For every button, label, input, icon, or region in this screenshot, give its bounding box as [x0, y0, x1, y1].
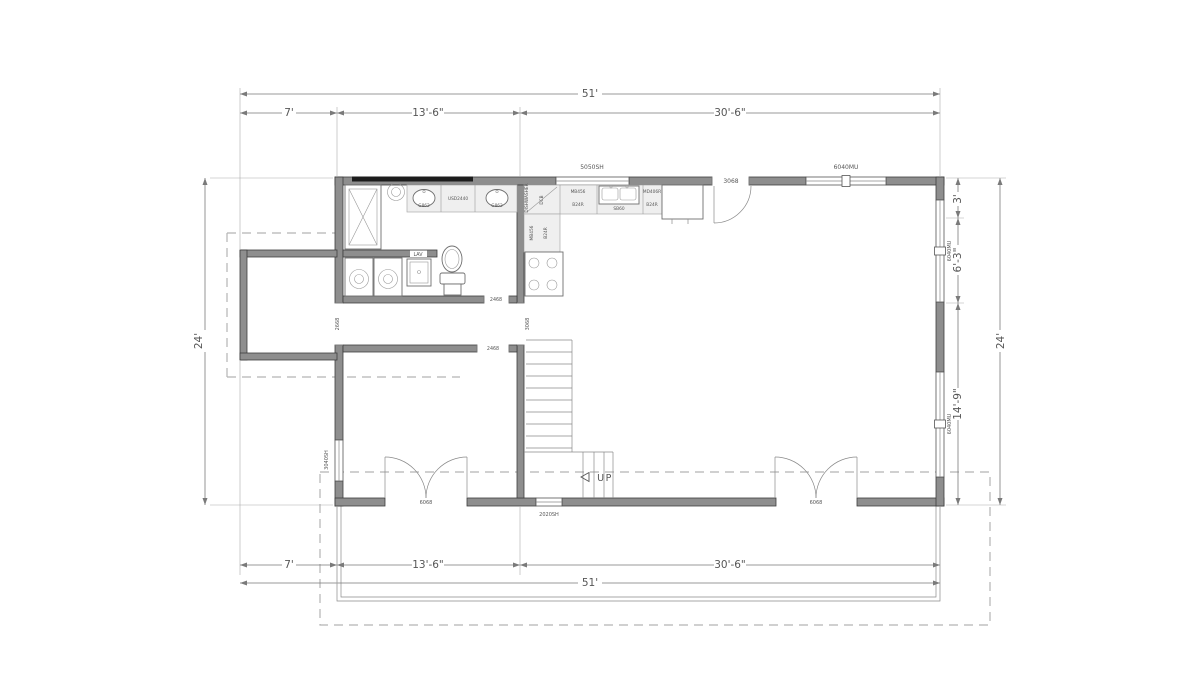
wall-bath-kitchen-divider	[517, 185, 524, 303]
toilet	[440, 246, 465, 295]
refrigerator	[662, 185, 703, 224]
kitchen-sink	[599, 186, 639, 204]
label-vanity-center: USD2440	[448, 196, 468, 202]
dim-left-overall: 24'	[193, 333, 205, 349]
up-arrow-icon	[581, 473, 589, 482]
label-opening-3068-hall: 3068	[525, 318, 531, 331]
wall-bottom-3	[562, 498, 776, 506]
window-6040mu-right-1	[935, 200, 946, 302]
label-leg-base-cabinet: B24R	[543, 227, 549, 238]
left-room-walls	[240, 250, 337, 360]
dim-top-seg-1: 7'	[284, 107, 294, 119]
label-window-6040mu-right-2: 6040MU	[947, 413, 953, 434]
label-door-2468-hall: 2468	[487, 346, 499, 352]
dim-right-seg-1: 3'	[952, 194, 964, 204]
dim-bottom-seg-2: 13'-6"	[412, 559, 444, 571]
dim-right-seg-2: 6'-3"	[952, 248, 964, 273]
label-door-2468-bath: 2468	[490, 297, 502, 303]
label-door-6068-right: 6068	[810, 500, 823, 506]
wall-left-1	[335, 177, 343, 303]
label-door-6068-left: 6068	[420, 500, 433, 506]
label-window-6040mu-right-1: 6040MU	[947, 240, 953, 261]
opening-labels: 5050SH 3068 6040MU 6040MU 6040MU 3040SH …	[324, 164, 953, 518]
dim-top-seg-3: 30'-6"	[714, 107, 746, 119]
wall-bath-south-b	[509, 296, 517, 303]
dim-top-seg-2: 13'-6"	[412, 107, 444, 119]
wall-hall-south-a	[343, 345, 477, 352]
wall-top-4	[886, 177, 944, 185]
label-window-5050sh: 5050SH	[580, 164, 604, 171]
wall-right-1	[936, 177, 944, 200]
label-cabinet-right: MD406R	[643, 189, 661, 195]
label-door-2668: 2668	[335, 318, 341, 331]
doors	[335, 177, 857, 498]
label-window-3040sh: 3040SH	[324, 450, 330, 470]
wall-bottom-2	[467, 498, 536, 506]
bathroom	[345, 177, 517, 297]
label-vanity-left-sink: G862	[418, 203, 430, 209]
stairs: UP	[524, 340, 613, 498]
window-6040mu-right-2	[935, 372, 946, 477]
range	[525, 252, 563, 296]
mirror	[352, 177, 473, 182]
wall-hall-south-b	[509, 345, 517, 352]
exhaust-fan-icon	[388, 184, 405, 201]
label-wall-cabinet: MB456	[571, 189, 586, 195]
window-3040sh-left	[335, 440, 343, 481]
wall-bottom-1	[335, 498, 385, 506]
wall-right-2	[936, 302, 944, 372]
window-5050sh	[556, 177, 629, 185]
floor-plan-page: UP	[0, 0, 1200, 700]
wall-bottom-4	[857, 498, 944, 506]
wall-top-3	[749, 177, 806, 185]
dim-bottom-seg-1: 7'	[284, 559, 294, 571]
shower	[345, 185, 381, 249]
label-corner-cabinet: DCB	[539, 195, 545, 204]
label-vanity-right-sink: G862	[491, 203, 503, 209]
windows	[335, 176, 946, 507]
dim-bottom-overall: 51'	[582, 577, 598, 589]
dim-top-overall: 51'	[582, 88, 598, 100]
wall-right-3	[936, 477, 944, 506]
wall-bath-south-a	[343, 296, 484, 303]
label-laundry-sink: LAV	[413, 252, 423, 258]
dimension-lines	[205, 88, 1006, 590]
floor-plan-canvas: UP	[0, 0, 1200, 700]
window-2020sh-bottom	[536, 498, 562, 506]
stairs-up-label: UP	[597, 473, 613, 484]
dim-right-seg-3: 14'-9"	[952, 388, 964, 420]
dim-right-overall: 24'	[995, 333, 1007, 349]
washer-dryer	[345, 258, 402, 296]
label-base-cabinet: B24R	[572, 202, 583, 208]
door-6068-french-right	[775, 457, 857, 498]
deck-outline	[337, 506, 940, 601]
exterior-walls	[335, 177, 944, 506]
kitchen	[524, 185, 703, 296]
wall-stair-west	[517, 345, 524, 498]
opening-3068-hall	[517, 303, 524, 345]
dim-bottom-seg-3: 30'-6"	[714, 559, 746, 571]
label-dishwasher: DISHWASHER	[524, 183, 530, 212]
label-kitchen-sink: SB60	[613, 206, 624, 212]
label-leg-wall-cabinet: MB456	[529, 225, 535, 240]
label-window-2020sh: 2020SH	[539, 512, 559, 518]
label-door-3068-top: 3068	[723, 178, 738, 185]
door-6068-french-left	[385, 457, 467, 498]
label-window-6040mu-top: 6040MU	[834, 164, 859, 171]
window-6040mu-top	[806, 176, 886, 187]
wall-top-2	[629, 177, 712, 185]
label-base-cabinet2: B24R	[646, 202, 657, 208]
